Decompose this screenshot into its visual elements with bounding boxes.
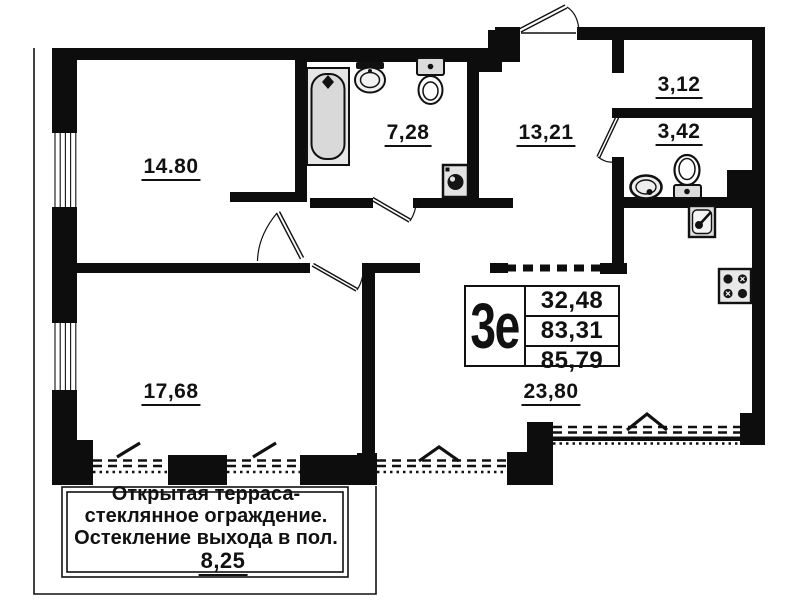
storage-area-label: 3,12 [656,74,703,99]
unit-area-row-total: 85,79 [526,347,618,375]
washing-machine-icon [443,165,468,197]
wc-toilet-icon [674,155,701,198]
unit-type-cell: 3е [466,287,526,365]
unit-area-row-no-terrace: 83,31 [526,317,618,347]
entrance-door-icon [519,5,579,33]
stove-icon [719,269,751,303]
kitchen-sink-icon [689,206,715,237]
bedroom-door-icon [258,212,304,262]
terrace-note-line-3: Остекление выхода в пол. [74,528,338,548]
living-room-door-icon [312,264,364,292]
terrace-note-line-2: стеклянное ограждение. [85,506,328,526]
bathroom-area-label: 7,28 [385,122,432,147]
wc-area-label: 3,42 [656,121,703,146]
wc-washbasin-icon [631,176,662,199]
kitchen-living-area-label: 23,80 [521,381,580,406]
hallway-area-label: 13,21 [516,122,575,147]
unit-type-label: 3е [471,289,519,363]
bathroom-door-icon [371,198,417,223]
floor-plan: 14.80 7,28 13,21 3,12 3,42 17,68 23,80 3… [0,0,799,600]
bathtub-icon [307,68,349,165]
terrace-note-line-1: Открытая терраса- [112,484,300,504]
unit-info-box: 3е 32,48 83,31 85,79 [464,285,620,367]
bedroom-area-label: 14.80 [141,156,200,181]
living-room-area-label: 17,68 [141,381,200,406]
unit-area-row-living: 32,48 [526,287,618,317]
bathroom-sink-icon [355,62,385,93]
terrace-area-label: 8,25 [199,550,248,576]
wc-door-icon [597,117,619,163]
bathroom-toilet-icon [417,58,444,104]
unit-area-table: 32,48 83,31 85,79 [526,287,618,365]
window-left-top [55,133,76,207]
window-left-bottom [55,323,76,390]
